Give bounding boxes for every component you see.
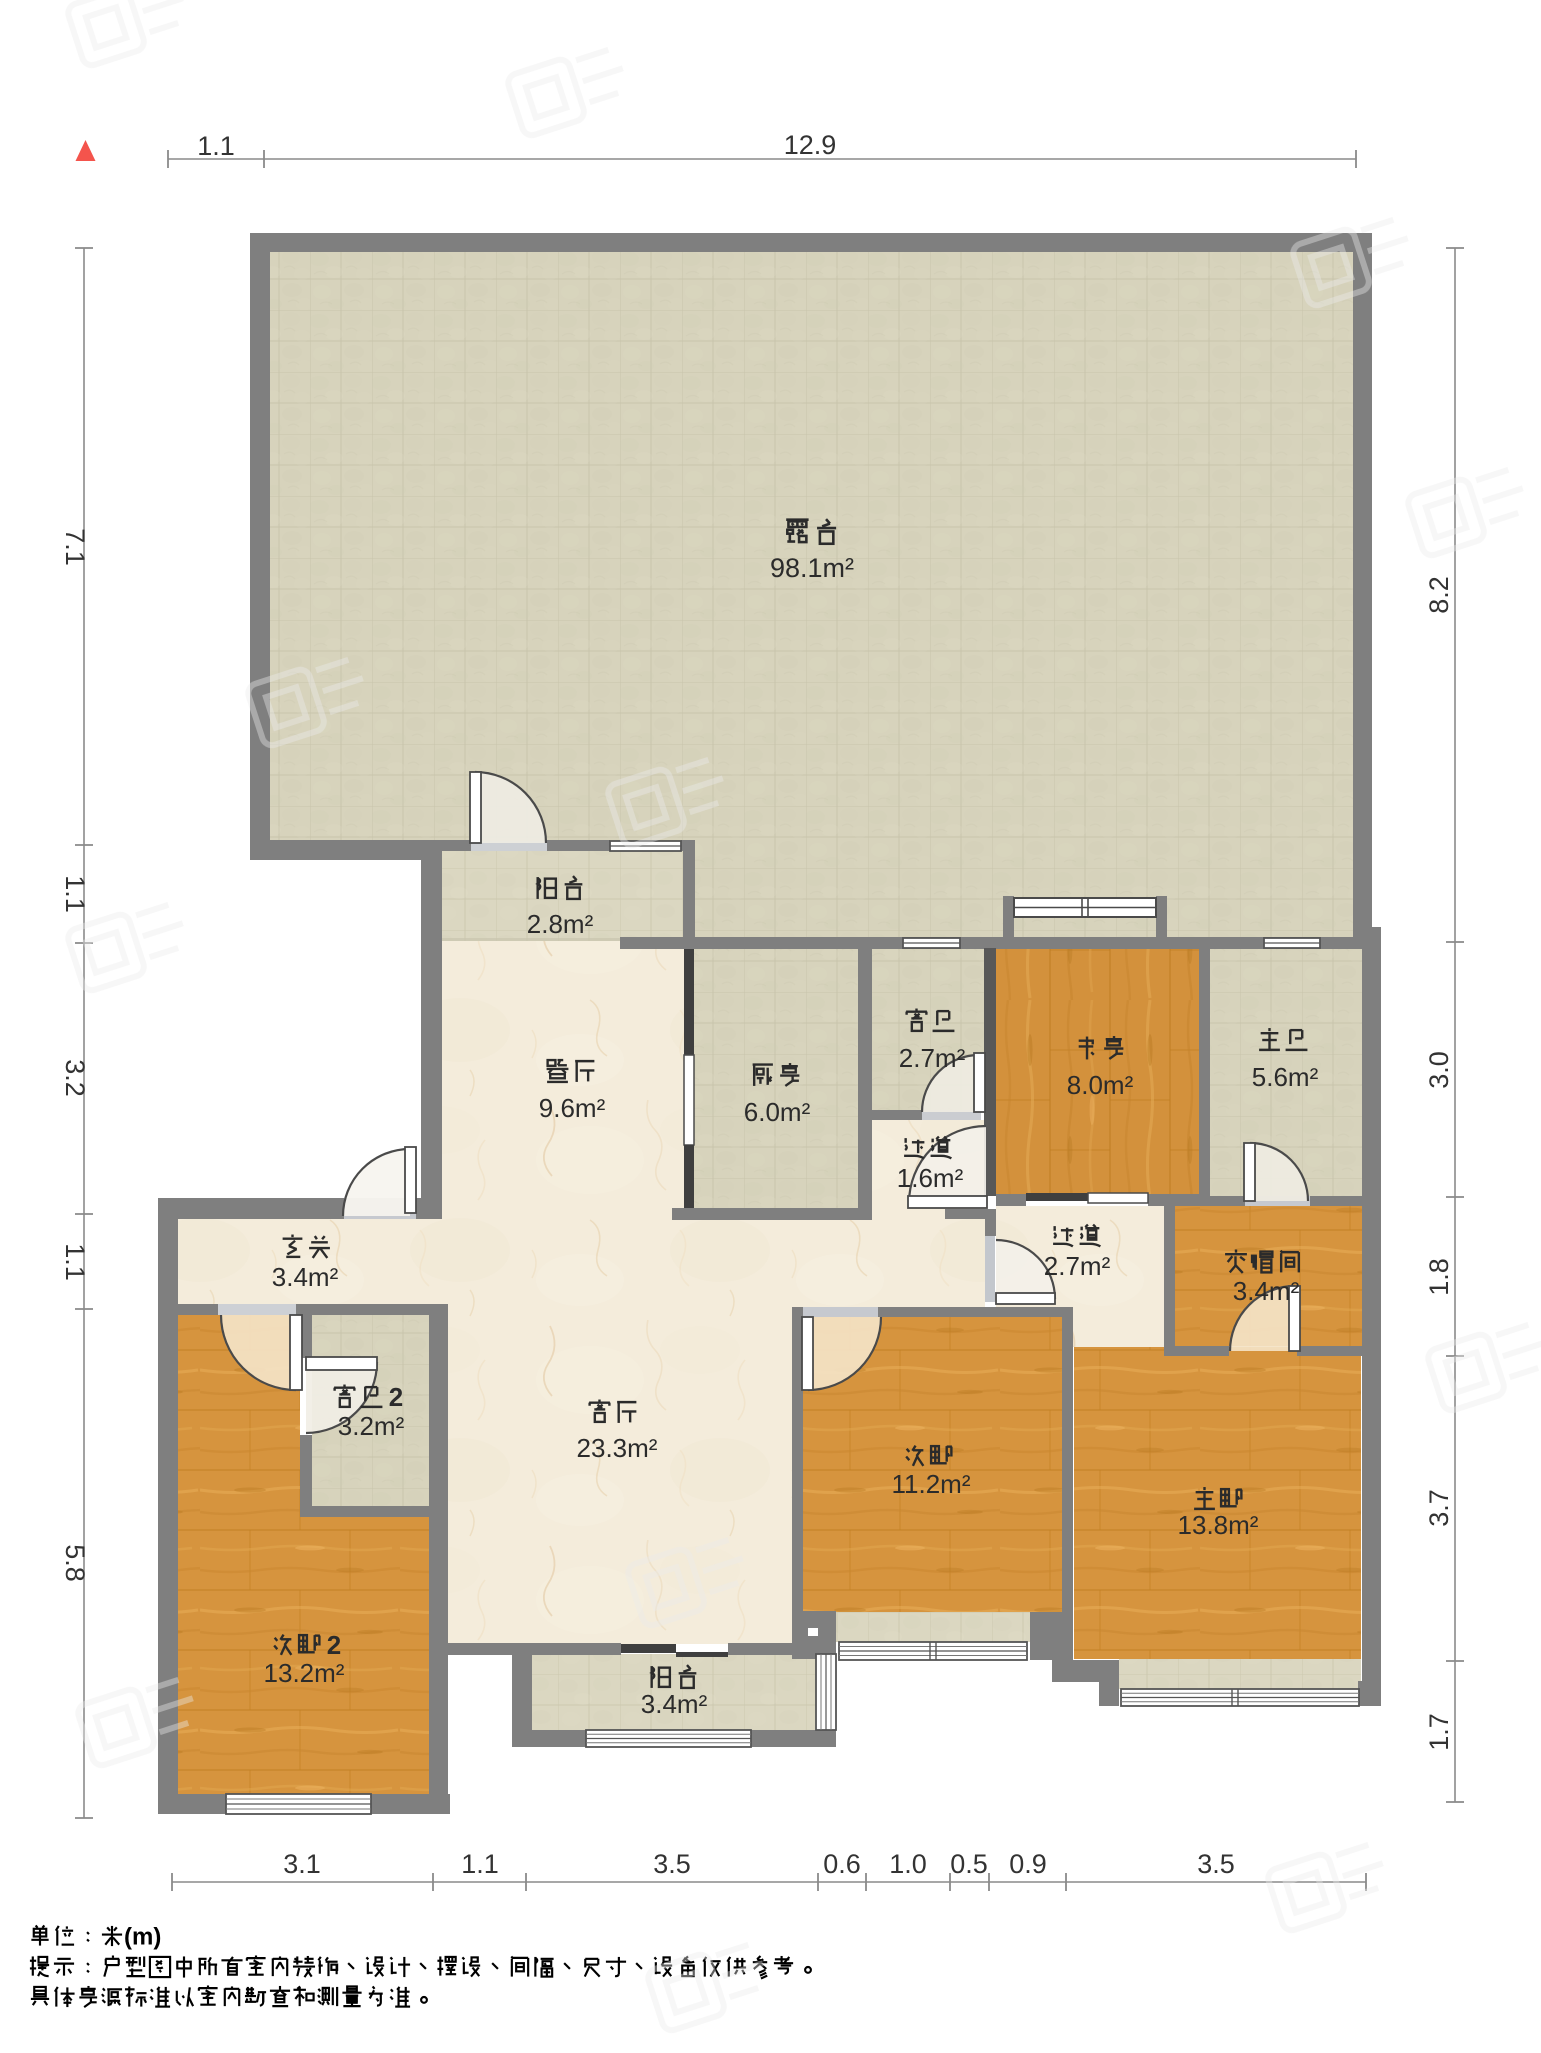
svg-text:12.9: 12.9	[784, 130, 837, 160]
svg-text:1.1: 1.1	[60, 1243, 90, 1281]
svg-text:2.7m²: 2.7m²	[1044, 1251, 1111, 1281]
svg-text:3.2: 3.2	[60, 1059, 90, 1097]
svg-text:2.7m²: 2.7m²	[899, 1043, 966, 1073]
svg-text:3.7: 3.7	[1424, 1489, 1454, 1527]
svg-text:5.6m²: 5.6m²	[1252, 1062, 1319, 1092]
svg-text:23.3m²: 23.3m²	[577, 1433, 658, 1463]
svg-text:1.8: 1.8	[1424, 1258, 1454, 1296]
svg-text:7.1: 7.1	[60, 528, 90, 566]
svg-text:1.1: 1.1	[60, 875, 90, 913]
svg-text:2: 2	[327, 1630, 341, 1660]
svg-text:9.6m²: 9.6m²	[539, 1093, 606, 1123]
svg-text:1.1: 1.1	[197, 131, 235, 161]
svg-text:0.5: 0.5	[950, 1849, 988, 1879]
svg-text:1.0: 1.0	[889, 1849, 927, 1879]
svg-text:1.1: 1.1	[461, 1849, 499, 1879]
svg-text:5.8: 5.8	[60, 1544, 90, 1582]
svg-text:3.5: 3.5	[653, 1849, 691, 1879]
svg-text:11.2m²: 11.2m²	[892, 1469, 971, 1499]
svg-text:3.2m²: 3.2m²	[338, 1411, 405, 1441]
svg-text:1.7: 1.7	[1424, 1713, 1454, 1751]
svg-text:13.2m²: 13.2m²	[264, 1658, 345, 1688]
svg-text:3.0: 3.0	[1424, 1051, 1454, 1089]
svg-text:3.4m²: 3.4m²	[1233, 1276, 1300, 1306]
svg-text:0.6: 0.6	[823, 1849, 861, 1879]
svg-text:2: 2	[389, 1382, 403, 1412]
svg-text:8.0m²: 8.0m²	[1067, 1070, 1134, 1100]
svg-text:3.5: 3.5	[1197, 1849, 1235, 1879]
svg-text:8.2: 8.2	[1424, 576, 1454, 614]
svg-text:3.4m²: 3.4m²	[641, 1689, 708, 1719]
svg-text:3.1: 3.1	[283, 1849, 321, 1879]
svg-text:3.4m²: 3.4m²	[272, 1262, 339, 1292]
svg-text:2.8m²: 2.8m²	[527, 909, 594, 939]
svg-text:0.9: 0.9	[1009, 1849, 1047, 1879]
svg-text:1.6m²: 1.6m²	[897, 1163, 964, 1193]
svg-text:(m): (m)	[124, 1924, 161, 1951]
svg-text:6.0m²: 6.0m²	[744, 1097, 811, 1127]
svg-text:98.1m²: 98.1m²	[770, 553, 854, 583]
svg-text:13.8m²: 13.8m²	[1178, 1510, 1259, 1540]
